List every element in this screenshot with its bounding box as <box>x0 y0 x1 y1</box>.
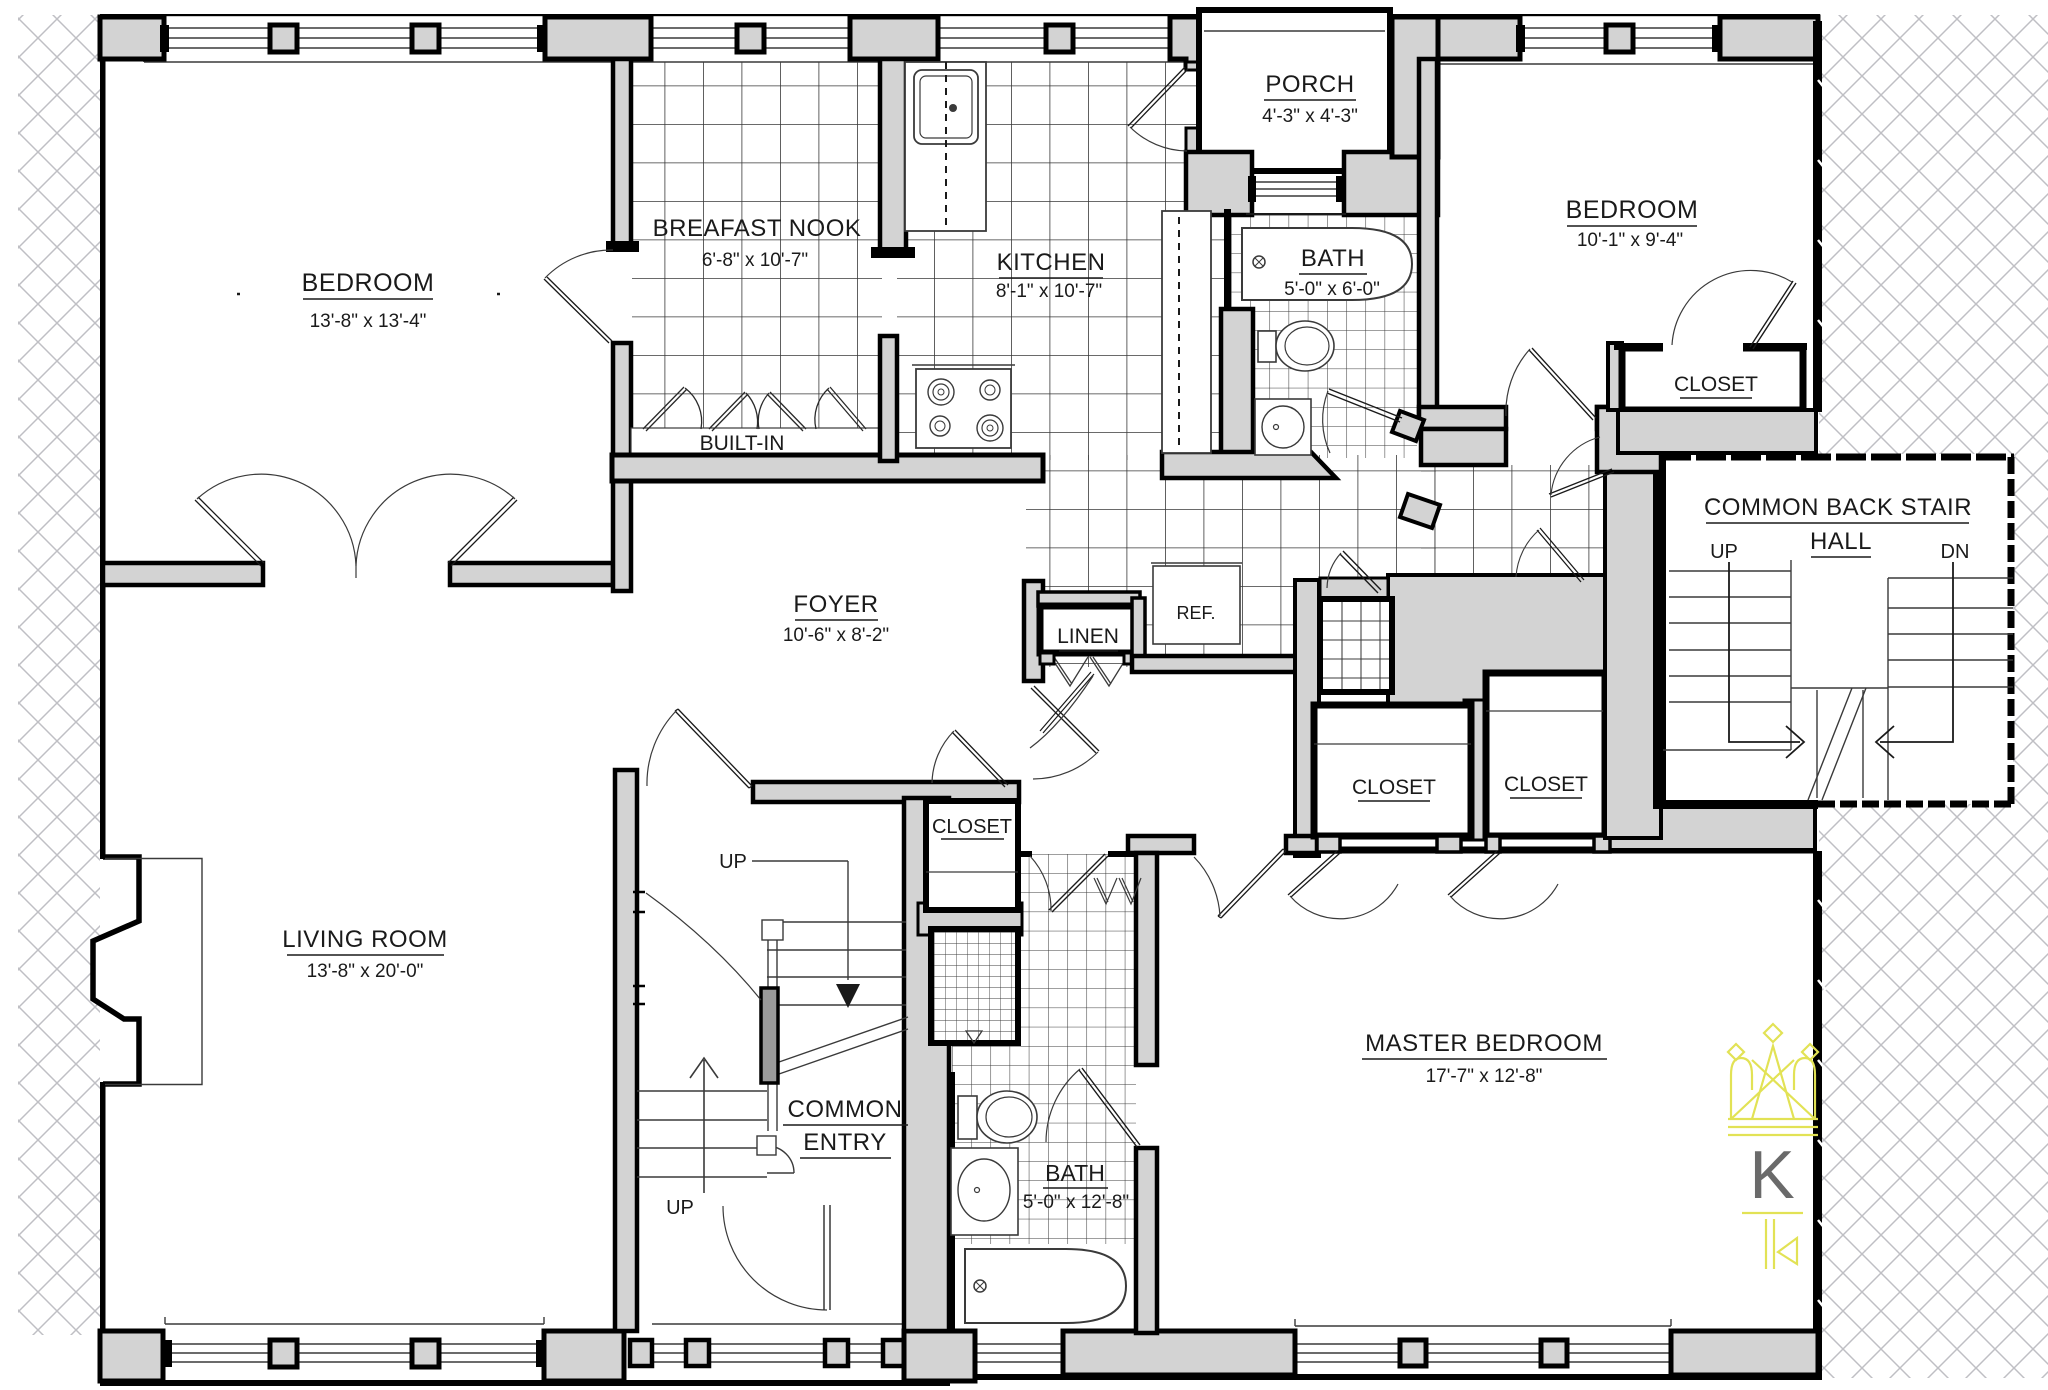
svg-text:BATH: BATH <box>1045 1160 1105 1186</box>
svg-text:BUILT-IN: BUILT-IN <box>700 432 785 455</box>
svg-text:KITCHEN: KITCHEN <box>997 249 1106 276</box>
svg-text:UP: UP <box>719 851 747 873</box>
svg-text:13'-8" x 20'-0": 13'-8" x 20'-0" <box>307 961 424 982</box>
svg-text:10'-1" x 9'-4": 10'-1" x 9'-4" <box>1577 230 1683 251</box>
svg-text:ENTRY: ENTRY <box>803 1129 886 1156</box>
svg-text:COMMON: COMMON <box>788 1096 903 1123</box>
svg-text:13'-8" x 13'-4": 13'-8" x 13'-4" <box>310 311 427 332</box>
svg-text:K: K <box>1749 1137 1794 1213</box>
svg-text:10'-6" x 8'-2": 10'-6" x 8'-2" <box>783 625 889 646</box>
svg-text:BEDROOM: BEDROOM <box>1566 196 1699 224</box>
svg-text:5'-0" x 12'-8": 5'-0" x 12'-8" <box>1023 1192 1129 1213</box>
svg-text:HALL: HALL <box>1810 528 1872 555</box>
svg-text:MASTER BEDROOM: MASTER BEDROOM <box>1365 1030 1603 1057</box>
svg-text:BEDROOM: BEDROOM <box>302 269 435 297</box>
svg-text:BREAFAST NOOK: BREAFAST NOOK <box>653 215 862 242</box>
svg-text:17'-7" x 12'-8": 17'-7" x 12'-8" <box>1426 1066 1543 1087</box>
svg-text:CLOSET: CLOSET <box>1504 773 1588 796</box>
svg-text:CLOSET: CLOSET <box>1674 373 1758 396</box>
svg-text:4'-3" x 4'-3": 4'-3" x 4'-3" <box>1262 106 1358 127</box>
svg-text:6'-8" x 10'-7": 6'-8" x 10'-7" <box>702 250 808 271</box>
svg-text:REF.: REF. <box>1176 603 1215 623</box>
svg-text:LINEN: LINEN <box>1057 625 1119 648</box>
svg-text:LIVING ROOM: LIVING ROOM <box>282 926 448 953</box>
svg-text:CLOSET: CLOSET <box>932 816 1012 838</box>
svg-text:DN: DN <box>1941 541 1970 563</box>
svg-text:CLOSET: CLOSET <box>1352 776 1436 799</box>
svg-text:PORCH: PORCH <box>1265 71 1354 98</box>
svg-text:UP: UP <box>666 1197 694 1219</box>
svg-text:FOYER: FOYER <box>793 591 878 618</box>
svg-text:8'-1" x 10'-7": 8'-1" x 10'-7" <box>996 281 1102 302</box>
svg-text:COMMON BACK STAIR: COMMON BACK STAIR <box>1704 494 1972 521</box>
svg-text:UP: UP <box>1710 541 1738 563</box>
svg-text:5'-0" x 6'-0": 5'-0" x 6'-0" <box>1284 279 1380 300</box>
svg-text:BATH: BATH <box>1301 245 1365 272</box>
